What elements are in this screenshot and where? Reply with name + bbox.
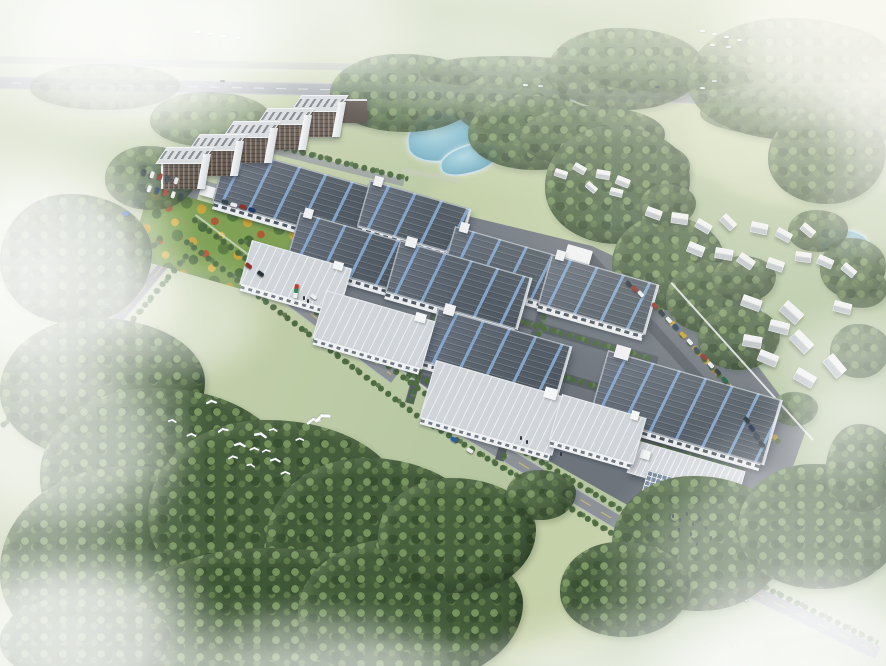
car [655, 86, 660, 88]
flying-bird [280, 468, 291, 474]
flying-bird [261, 446, 271, 453]
village-cottage [671, 212, 689, 225]
flying-bird [268, 425, 278, 432]
flying-bird [249, 444, 260, 450]
scene-objects [0, 0, 886, 666]
village-cottage [719, 213, 737, 231]
flying-bird [269, 454, 282, 462]
flying-bird [205, 396, 218, 404]
cloud [80, 250, 280, 390]
flying-bird [295, 435, 305, 441]
flying-bird [227, 452, 238, 459]
village-cottage [795, 251, 812, 263]
flying-bird [233, 438, 247, 447]
cloud [290, 10, 610, 120]
village-cottage [750, 221, 769, 235]
pedestrian [307, 299, 309, 303]
pedestrian [560, 452, 562, 456]
car [700, 87, 705, 89]
pedestrian [303, 296, 305, 300]
pedestrian [526, 440, 528, 444]
pedestrian [520, 436, 522, 440]
aerial-rendering-industrial-park [0, 0, 886, 666]
